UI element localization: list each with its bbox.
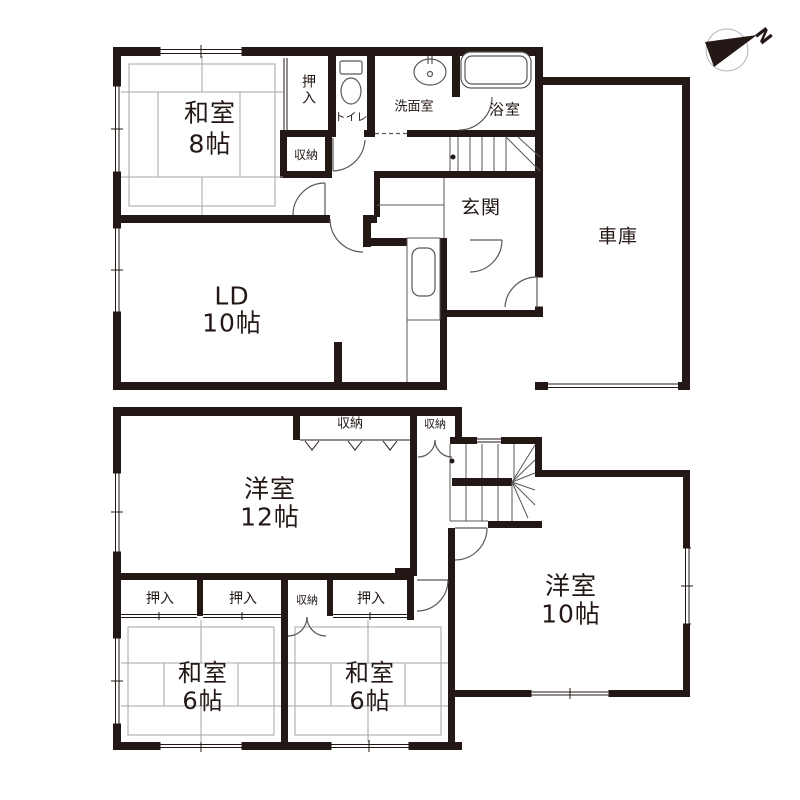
stairs-1f xyxy=(450,137,540,171)
room-label-washitsu6-right-size: 6帖 xyxy=(349,689,390,713)
room-label-western12-name: 洋室 xyxy=(244,477,296,502)
room-label-garage: 車庫 xyxy=(598,228,638,247)
room-label-washitsu8-name: 和室 xyxy=(184,101,236,126)
room-label-washroom: 洗面室 xyxy=(394,101,433,114)
room-label-western10-size: 10帖 xyxy=(541,602,601,627)
room-label-oshiire-2f-left: 押入 xyxy=(146,592,174,606)
room-label-entrance: 玄関 xyxy=(461,199,501,218)
room-label-washitsu6-left-size: 6帖 xyxy=(182,689,223,713)
room-label-oshiire-1f: 押入 xyxy=(301,74,315,106)
room-label-washitsu6-right-name: 和室 xyxy=(345,661,395,685)
room-label-oshiire-2f-right: 押入 xyxy=(357,592,385,606)
room-label-closet-1f: 収納 xyxy=(294,149,318,161)
room-label-bathroom: 浴室 xyxy=(489,103,521,118)
entrance-step-lines xyxy=(377,178,444,238)
floorplan-drawing xyxy=(0,0,800,800)
room-label-closet-2f-top: 収納 xyxy=(337,418,363,431)
room-label-oshiire-2f-mid: 押入 xyxy=(229,592,257,606)
sliding-doors xyxy=(121,58,410,620)
room-label-ld-name: LD xyxy=(214,284,249,309)
floorplan-page: 和室 8帖 押入 収納 トイレ 洗面室 浴室 玄関 車庫 LD 10帖 収納 収… xyxy=(0,0,800,800)
room-label-western12-size: 12帖 xyxy=(240,505,300,530)
room-label-ld-size: 10帖 xyxy=(202,311,262,336)
room-label-closet-2f-row: 収納 xyxy=(296,595,318,606)
kitchen-counter-icon xyxy=(407,238,440,382)
room-label-western10-name: 洋室 xyxy=(545,574,597,599)
compass-icon xyxy=(705,29,757,71)
room-label-closet-2f-top-small: 収納 xyxy=(424,419,446,430)
toilet-icon xyxy=(340,61,362,104)
room-label-washitsu8-size: 8帖 xyxy=(189,132,232,157)
bathtub-icon xyxy=(461,52,531,88)
room-label-washitsu6-left-name: 和室 xyxy=(178,661,228,685)
room-label-toilet: トイレ xyxy=(335,112,368,123)
sink-icon xyxy=(414,56,446,85)
